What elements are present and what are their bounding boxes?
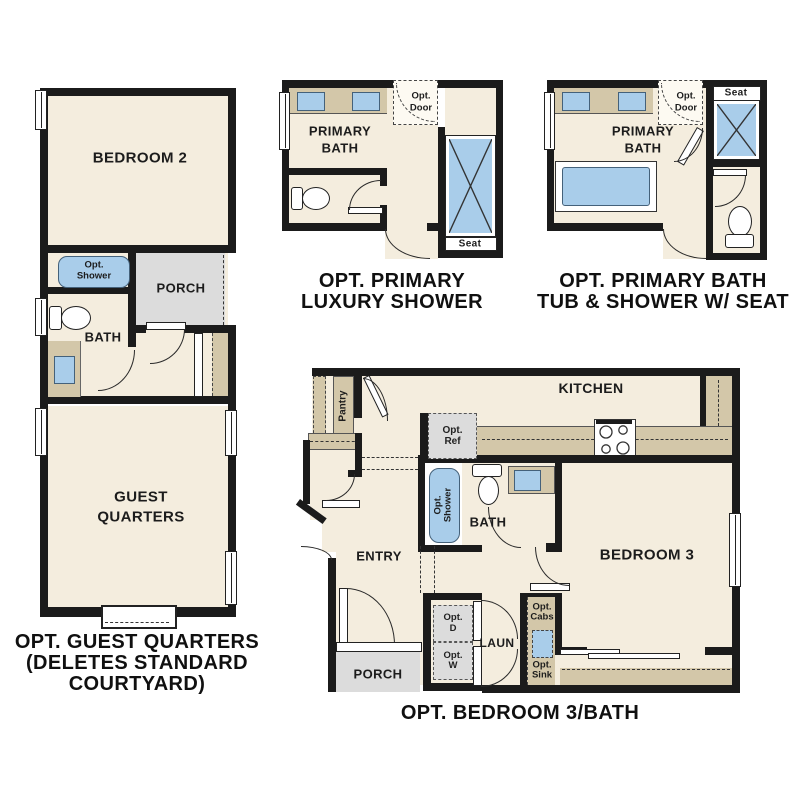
wall (705, 647, 732, 655)
window (729, 513, 741, 587)
opt-dryer-label: Opt. (444, 613, 463, 623)
counter-dashed (718, 380, 719, 426)
opening-dashed (420, 546, 421, 593)
wall (423, 593, 482, 600)
opt-ref: Opt. Ref (428, 413, 477, 459)
wall (520, 595, 527, 685)
opt-shower-label-line: Opt. (433, 496, 444, 515)
wall (312, 368, 740, 376)
opt-sink-label: Sink (532, 670, 552, 681)
opt-washer: Opt. W (433, 642, 473, 680)
wall (418, 463, 425, 552)
pantry-shelf (313, 376, 326, 438)
closet-slider (588, 653, 680, 659)
wall (555, 461, 562, 543)
opt-ref-label: Ref (444, 436, 460, 447)
toilet-bowl (478, 476, 499, 505)
entry-label: ENTRY (356, 549, 402, 564)
porch-threshold (336, 642, 422, 652)
wall (355, 433, 362, 473)
wall (354, 368, 362, 418)
opening-dashed (362, 457, 418, 458)
wall (423, 593, 431, 691)
closet-dashed (562, 669, 730, 670)
plan-bedroom3-bath: Pantry (0, 0, 810, 810)
opt-cabs-label: Cabs (530, 612, 553, 623)
wall (482, 685, 740, 693)
opt-sink-fixture (532, 630, 553, 658)
opt-ref-label: Opt. (443, 425, 463, 436)
bath-sink (514, 470, 541, 491)
wall (303, 440, 310, 504)
pantry-label: Pantry (338, 390, 349, 421)
opening-dashed (434, 546, 435, 593)
wall (328, 558, 336, 692)
opt-shower-label: Opt. Shower (434, 488, 455, 522)
kitchen-counter-column (706, 376, 732, 426)
wall (420, 413, 428, 459)
wall (700, 376, 706, 426)
opening-dashed (362, 469, 418, 470)
opt-dryer: Opt. D (433, 605, 473, 642)
opt-shower-label-line: Shower (443, 488, 454, 522)
laundry-label: LAUN (480, 636, 515, 650)
opt-washer-label: W (449, 661, 458, 671)
opt-dryer-label: D (450, 624, 457, 634)
side-door (322, 500, 360, 508)
stove-burners (594, 419, 634, 459)
porch-label: PORCH (354, 667, 403, 682)
plan4-caption: OPT. BEDROOM 3/BATH (401, 703, 639, 724)
bath-label: BATH (470, 515, 507, 530)
counter-dashed (310, 441, 360, 442)
floorplan-sheet: Opt. Shower BEDROOM 2 PORCH BATH GUEST Q… (0, 0, 810, 810)
wall (418, 545, 482, 552)
wall (555, 595, 562, 655)
closet-shelf (560, 668, 732, 685)
kitchen-label: KITCHEN (558, 380, 623, 396)
bedroom3-label: BEDROOM 3 (600, 547, 694, 564)
